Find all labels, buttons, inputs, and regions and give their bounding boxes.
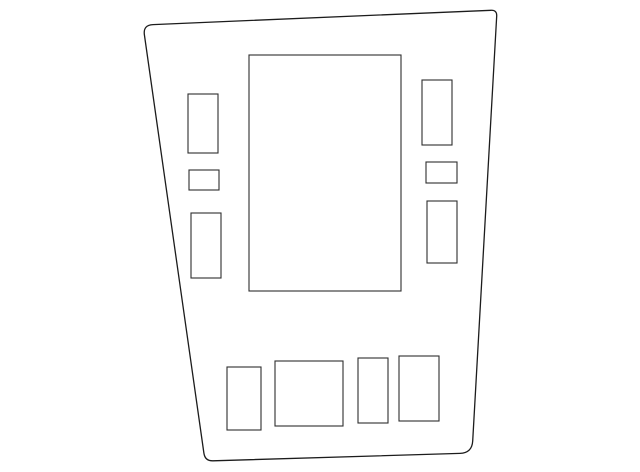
- cutout-left-bottom: [191, 213, 221, 278]
- cutout-bottom-row-4: [399, 356, 439, 421]
- cutout-bottom-row-2: [275, 361, 343, 426]
- cutout-bottom-row-1: [227, 367, 261, 430]
- cutout-left-top: [188, 94, 218, 153]
- diagram-canvas: [0, 0, 640, 472]
- parts-diagram: [0, 0, 640, 472]
- cutout-right-bottom: [427, 201, 457, 263]
- cutout-bottom-row-3: [358, 358, 388, 423]
- cutout-center-large: [249, 55, 401, 291]
- cutout-right-top: [422, 80, 452, 145]
- cutout-right-middle-small: [426, 162, 457, 183]
- cutout-left-middle-small: [189, 170, 219, 190]
